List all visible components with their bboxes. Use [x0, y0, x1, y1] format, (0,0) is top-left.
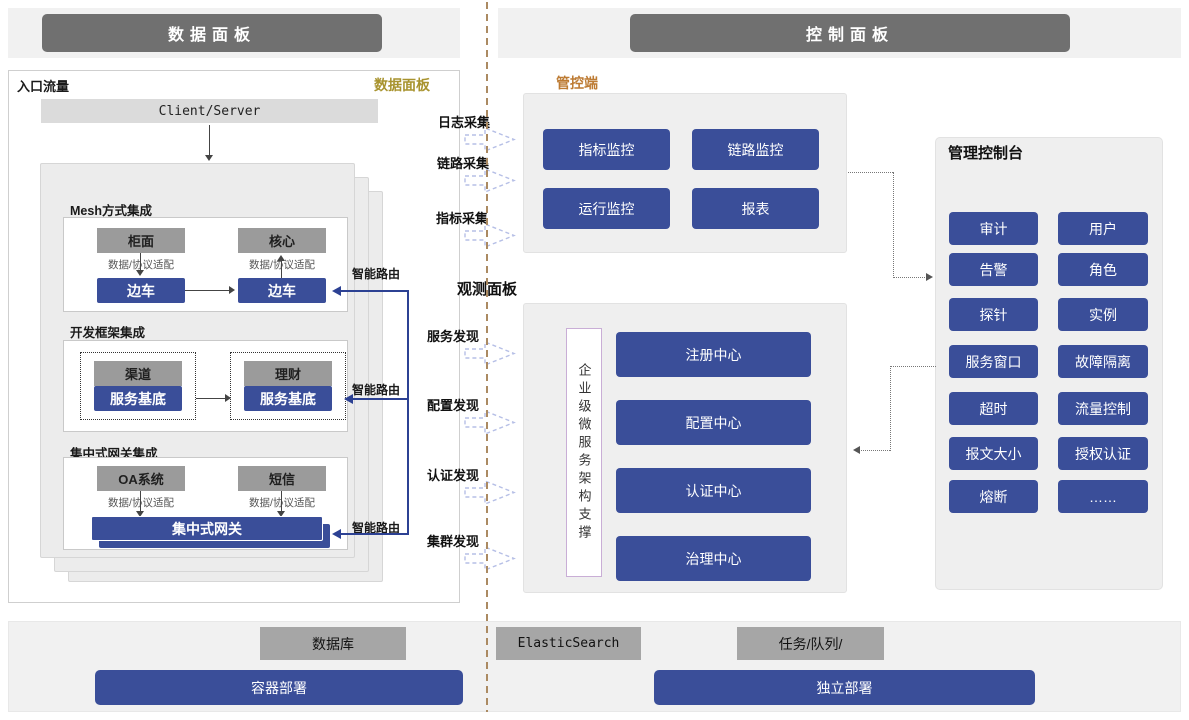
console-node-timeout: 超时: [949, 392, 1038, 425]
adapter-label-sms: 数据/协议适配: [233, 495, 331, 510]
base-link-arrow: [225, 394, 235, 402]
node-teller: 柜面: [97, 228, 185, 253]
ingress-label: 入口流量: [17, 76, 69, 95]
sms-gateway-line: [281, 491, 282, 513]
data-plane-corner-label: 数据面板: [374, 75, 430, 95]
runtime-monitor-node: 运行监控: [543, 188, 670, 229]
smart-route-hline-1: [336, 290, 409, 292]
client-arrow-line: [209, 125, 210, 156]
control-plane-header: 控制面板: [630, 14, 1070, 52]
flow-arrow-icon: [463, 222, 517, 254]
node-channel: 渠道: [94, 361, 182, 386]
sidecar-link-arrow: [229, 286, 239, 294]
sidecar-core-arrow: [277, 251, 285, 261]
panel-divider-line: [486, 2, 488, 712]
smart-route-hline-3: [336, 533, 409, 535]
metric-monitor-node: 指标监控: [543, 129, 670, 170]
control-end-label: 管控端: [556, 73, 598, 93]
smart-route-vline: [407, 291, 409, 535]
smart-route-label-2: 智能路由: [352, 381, 400, 398]
console-node-alert: 告警: [949, 253, 1038, 286]
flow-arrow-icon: [463, 340, 517, 372]
console-node-probe: 探针: [949, 298, 1038, 331]
management-console-title: 管理控制台: [948, 142, 1023, 163]
console-node-more: ……: [1058, 480, 1148, 513]
sidecar-link-line: [185, 290, 229, 291]
report-node: 报表: [692, 188, 819, 229]
node-sidecar-right: 边车: [238, 278, 326, 303]
auth-center-node: 认证中心: [616, 468, 811, 513]
governance-center-node: 治理中心: [616, 536, 811, 581]
architecture-diagram: 数据面板 控制面板 入口流量 数据面板 Client/Server Mesh方式…: [0, 0, 1189, 720]
smart-route-arrow-3: [327, 529, 341, 539]
trace-monitor-node: 链路监控: [692, 129, 819, 170]
base-link-line: [196, 398, 226, 399]
connector-a-arrow: [926, 273, 937, 281]
client-server-node: Client/Server: [41, 99, 378, 123]
connector-a-v: [893, 172, 894, 278]
console-node-service-window: 服务窗口: [949, 345, 1038, 378]
config-center-node: 配置中心: [616, 400, 811, 445]
database-node: 数据库: [260, 627, 406, 660]
container-deploy-bar: 容器部署: [95, 670, 463, 705]
flow-arrow-icon: [463, 545, 517, 577]
smart-route-hline-2: [348, 398, 409, 400]
oa-gateway-line: [140, 491, 141, 513]
elasticsearch-node: ElasticSearch: [496, 627, 641, 660]
connector-a-h1: [848, 172, 893, 173]
node-sidecar-left: 边车: [97, 278, 185, 303]
standalone-deploy-bar: 独立部署: [654, 670, 1035, 705]
node-service-base-left: 服务基底: [94, 386, 182, 411]
adapter-label-oa: 数据/协议适配: [92, 495, 190, 510]
node-oa-system: OA系统: [97, 466, 185, 491]
console-node-fault-isolation: 故障隔离: [1058, 345, 1148, 378]
data-plane-header: 数据面板: [42, 14, 382, 52]
framework-section-title: 开发框架集成: [70, 322, 145, 341]
smart-route-arrow-1: [327, 286, 341, 296]
smart-route-arrow-2: [339, 394, 353, 404]
console-node-role: 角色: [1058, 253, 1148, 286]
flow-arrow-icon: [463, 167, 517, 199]
connector-b-h1: [890, 366, 936, 367]
console-node-audit: 审计: [949, 212, 1038, 245]
gateway-bar: 集中式网关: [91, 516, 323, 541]
console-node-auth-cert: 授权认证: [1058, 437, 1148, 470]
monitor-panel: [523, 93, 847, 253]
console-node-user: 用户: [1058, 212, 1148, 245]
connector-b-arrow: [849, 446, 860, 454]
node-sms: 短信: [238, 466, 326, 491]
node-service-base-right: 服务基底: [244, 386, 332, 411]
flow-arrow-icon: [463, 409, 517, 441]
registry-center-node: 注册中心: [616, 332, 811, 377]
console-node-message-size: 报文大小: [949, 437, 1038, 470]
connector-b-v: [890, 366, 891, 451]
flow-arrow-icon: [463, 479, 517, 511]
task-queue-node: 任务/队列/: [737, 627, 884, 660]
console-node-instance: 实例: [1058, 298, 1148, 331]
console-node-circuit-break: 熔断: [949, 480, 1038, 513]
connector-b-h2: [857, 450, 890, 451]
arch-support-label: 企业级微服务架构支撑: [566, 328, 602, 577]
node-wealth: 理财: [244, 361, 332, 386]
node-core: 核心: [238, 228, 326, 253]
console-node-flow-control: 流量控制: [1058, 392, 1148, 425]
smart-route-label-1: 智能路由: [352, 265, 400, 282]
connector-a-h2: [893, 277, 927, 278]
